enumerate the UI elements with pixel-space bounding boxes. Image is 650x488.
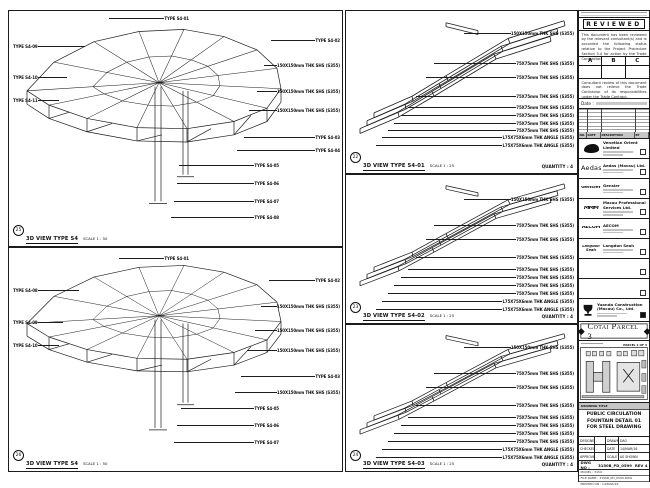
- view-name: 3D VIEW TYPE S4-03: [363, 461, 425, 469]
- dwg-no-label: DWG NO :: [581, 460, 597, 470]
- view-scale: SCALE 1 : 50: [83, 461, 107, 466]
- review-status-grid: A B C: [579, 57, 649, 79]
- tube-assembly-drawing: [346, 175, 577, 308]
- view-panel-mid-top: 150X150mm THK SHS (S355)75X75mm THK SHS …: [345, 10, 578, 174]
- drawing-number-row: DWG NO : 3150B_PD_0599 REV 4: [579, 461, 649, 470]
- project-title: Cotai Parcel 3: [588, 321, 641, 341]
- approval-checkbox[interactable]: [640, 229, 646, 235]
- view-name: 3D VIEW TYPE S4-01: [363, 163, 425, 171]
- company-row: Gensler Gensler: [579, 179, 649, 199]
- revision-table-header: NO. DATE DESCRIPTION BY: [579, 132, 649, 138]
- key-plan: PARCEL 1 OF 3: [579, 341, 649, 403]
- status-c-checkarea[interactable]: [626, 66, 649, 78]
- canopy-structure-drawing: [9, 11, 342, 231]
- company-row: [579, 279, 649, 299]
- view-panel-mid-middle: 150X150mm THK SHS (S355)75X75mm THK SHS …: [345, 174, 578, 324]
- banner-ornament-right-icon: [644, 328, 650, 334]
- company-row: Aedas Aedas (Macau) Ltd.: [579, 159, 649, 179]
- view-title: 25 3D VIEW TYPE S4 SCALE 1 : 50: [13, 225, 107, 244]
- view-name: 3D VIEW TYPE S4-02: [363, 313, 425, 321]
- stamp-date-row: Date :: [579, 99, 649, 109]
- field-row: CHECKED-DATE14/MAR/16: [579, 445, 649, 453]
- approval-checkbox[interactable]: [640, 290, 646, 296]
- date-fill-line[interactable]: [596, 102, 647, 105]
- detail-bubble: 25: [13, 225, 24, 236]
- approval-checkbox[interactable]: [640, 189, 646, 195]
- view-panel-left-bottom: TYPE S4-08TYPE S4-09TYPE S4-10 TYPE S4-0…: [8, 247, 343, 472]
- view-title: 23 3D VIEW TYPE S4-02 SCALE 1 : 25: [350, 302, 454, 321]
- banner-ornament-left-icon: [578, 328, 584, 334]
- drawing-title-label: DRAWING TITLE: [581, 404, 608, 408]
- company-logo-icon: MMM: [581, 206, 601, 212]
- drawing-title-section: DRAWING TITLE PUBLIC CIRCULATION FOUNTAI…: [579, 403, 649, 437]
- view-name: 3D VIEW TYPE S4: [26, 461, 78, 469]
- approval-checkbox[interactable]: [640, 149, 646, 155]
- contractor-row: Yuanda Construction (Macau) Co., Ltd.: [579, 299, 649, 322]
- approval-checkbox[interactable]: [640, 249, 646, 255]
- view-title: 26 3D VIEW TYPE S4 SCALE 1 : 50: [13, 450, 107, 469]
- detail-bubble: 23: [350, 302, 361, 313]
- drawing-title-line-1: PUBLIC CIRCULATION: [579, 412, 649, 419]
- approval-checkbox[interactable]: [640, 209, 646, 215]
- company-row: AECOM AECOM: [579, 219, 649, 239]
- view-title: 24 3D VIEW TYPE S4-03 SCALE 1 : 25: [350, 450, 454, 469]
- view-scale: SCALE 1 : 25: [430, 163, 454, 168]
- revision-rows: [579, 109, 649, 132]
- reviewed-stamp-title: REVIEWED: [583, 19, 644, 29]
- rev-col-date: DATE: [587, 132, 601, 138]
- yuanda-trophy-logo-icon: [581, 303, 595, 318]
- title-block-fields: DESIGNED-DRAWNDAO CHECKED-DATE14/MAR/16 …: [579, 437, 649, 481]
- view-title: 22 3D VIEW TYPE S4-01 SCALE 1 : 25: [350, 152, 454, 171]
- detail-bubble: 26: [13, 450, 24, 461]
- dwg-no-value: 3150B_PD_0599: [598, 463, 632, 468]
- tube-assembly-drawing: [346, 325, 577, 456]
- rev-col-no: NO.: [579, 132, 587, 138]
- company-name: Gensler: [603, 184, 647, 188]
- project-banner: Cotai Parcel 3: [579, 322, 649, 341]
- rev-value: 4: [645, 463, 648, 468]
- canopy-structure-drawing: [9, 248, 342, 456]
- company-logo-icon: AECOM: [581, 226, 601, 231]
- view-scale: SCALE 1 : 25: [430, 461, 454, 466]
- quantity-note: QUANTITY : 4: [542, 164, 573, 169]
- detail-bubble: 22: [350, 152, 361, 163]
- status-a-checkarea[interactable]: [579, 66, 602, 78]
- company-logo-icon: Aedas: [581, 165, 601, 172]
- drawing-title-line-3: FOR STEEL DRAWING: [579, 425, 649, 432]
- tube-assembly-drawing: [346, 11, 577, 158]
- company-name: AECOM: [603, 224, 647, 228]
- company-logo-icon: Gensler: [581, 186, 601, 191]
- revision-table: NO. DATE DESCRIPTION BY: [579, 109, 649, 139]
- contractor-name: Yuanda Construction (Macau) Co., Ltd.: [597, 303, 647, 312]
- contractor-checkbox[interactable]: [640, 312, 646, 318]
- view-panel-left-top: TYPE S4-09TYPE S4-10TYPE S4-11 TYPE S4-0…: [8, 10, 343, 247]
- company-name: Aedas (Macau) Ltd.: [603, 164, 647, 168]
- reviewed-stamp-text-2: Consultant review of this document does …: [579, 79, 649, 99]
- drawing-sheet: TYPE S4-09TYPE S4-10TYPE S4-11 TYPE S4-0…: [0, 0, 650, 488]
- view-scale: SCALE 1 : 50: [83, 236, 107, 241]
- consultant-rows: Venetian Orient Limited Aedas Aedas (Mac…: [579, 139, 649, 299]
- key-plan-map: [580, 347, 648, 400]
- key-plan-label: PARCEL 1 OF 3: [623, 343, 647, 347]
- detail-bubble: 24: [350, 450, 361, 461]
- status-b-label: B: [602, 57, 625, 66]
- company-row: MMM Macau Professional Services Ltd.: [579, 199, 649, 219]
- approval-checkbox[interactable]: [640, 269, 646, 275]
- quantity-note: QUANTITY : 4: [542, 462, 573, 467]
- status-b-checkarea[interactable]: [602, 66, 625, 78]
- approval-checkbox[interactable]: [640, 169, 646, 175]
- date-label: Date :: [581, 101, 594, 106]
- company-logo-icon: [581, 144, 601, 153]
- view-panel-mid-bottom: 150X150mm THK SHS (S355)75X75mm THK SHS …: [345, 324, 578, 472]
- status-c-label: C: [626, 57, 649, 66]
- rev-col-desc: DESCRIPTION: [601, 132, 635, 138]
- company-name: Langdon Seah: [603, 244, 647, 248]
- view-scale: SCALE 1 : 25: [430, 313, 454, 318]
- rev-label: REV: [635, 463, 643, 468]
- quantity-note: QUANTITY : 4: [542, 314, 573, 319]
- general-notes-strip: [579, 11, 649, 18]
- rev-col-by: BY: [635, 132, 649, 138]
- company-logo-icon: Langdon Seah: [581, 245, 601, 252]
- company-row: Venetian Orient Limited: [579, 139, 649, 159]
- company-row: Langdon Seah Langdon Seah: [579, 239, 649, 259]
- reviewed-stamp: REVIEWED: [579, 18, 649, 31]
- status-a-label: A: [579, 57, 602, 66]
- title-block: REVIEWED This document has been reviewed…: [578, 10, 650, 482]
- company-row: [579, 259, 649, 279]
- field-row: DESIGNED-DRAWNDAO: [579, 437, 649, 445]
- file-info-row: PRINTED ON : 14/MAR/16: [579, 482, 649, 487]
- view-name: 3D VIEW TYPE S4: [26, 236, 78, 244]
- reviewed-stamp-text-1: This document has been reviewed by the r…: [579, 31, 649, 57]
